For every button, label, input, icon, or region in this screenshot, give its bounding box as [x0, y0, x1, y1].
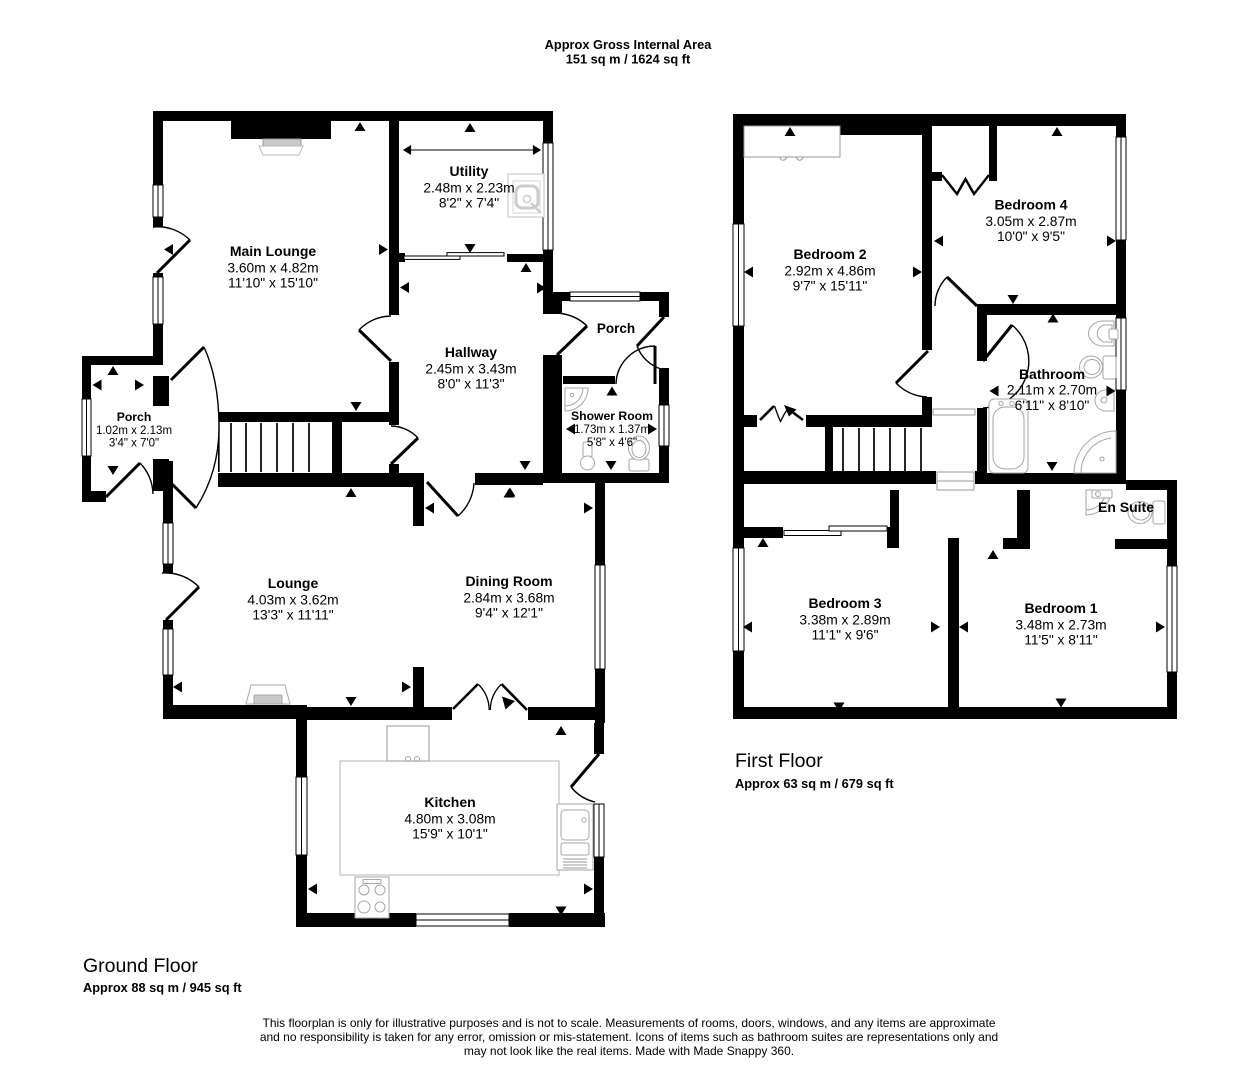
svg-text:Approx 63 sq m / 679 sq ft: Approx 63 sq m / 679 sq ft	[735, 776, 894, 791]
svg-text:Main Lounge: Main Lounge	[230, 243, 317, 259]
svg-text:Ground Floor: Ground Floor	[83, 955, 198, 977]
svg-text:1.02m x 2.13m: 1.02m x 2.13m	[96, 425, 172, 437]
svg-text:3.05m x 2.87m: 3.05m x 2.87m	[985, 214, 1076, 229]
svg-text:11'5" x 8'11": 11'5" x 8'11"	[1024, 633, 1098, 648]
svg-text:Dining Room: Dining Room	[465, 573, 552, 589]
svg-text:9'4" x 12'1": 9'4" x 12'1"	[475, 606, 543, 621]
svg-text:6'11" x 8'10": 6'11" x 8'10"	[1015, 398, 1090, 413]
svg-text:15'9" x 10'1": 15'9" x 10'1"	[412, 827, 488, 842]
svg-text:Bedroom 3: Bedroom 3	[808, 595, 881, 611]
svg-text:9'7" x 15'11": 9'7" x 15'11"	[793, 279, 868, 294]
svg-text:Approx 88 sq m / 945 sq ft: Approx 88 sq m / 945 sq ft	[83, 980, 242, 995]
svg-text:3.48m x 2.73m: 3.48m x 2.73m	[1015, 618, 1106, 633]
svg-text:Utility: Utility	[450, 163, 489, 179]
svg-text:2.92m x 4.86m: 2.92m x 4.86m	[784, 264, 875, 279]
svg-text:Porch: Porch	[597, 321, 635, 336]
svg-text:4.80m x 3.08m: 4.80m x 3.08m	[404, 812, 495, 827]
svg-text:4.03m x 3.62m: 4.03m x 3.62m	[247, 593, 338, 608]
svg-text:Bedroom 1: Bedroom 1	[1024, 600, 1097, 616]
svg-text:and no responsibility is taken: and no responsibility is taken for any e…	[260, 1030, 998, 1044]
svg-text:2.45m x 3.43m: 2.45m x 3.43m	[425, 362, 516, 377]
svg-text:1.73m x 1.37m: 1.73m x 1.37m	[574, 424, 650, 436]
svg-text:5'8" x 4'6": 5'8" x 4'6"	[587, 437, 637, 449]
svg-text:Porch: Porch	[117, 410, 152, 424]
svg-text:Bedroom 4: Bedroom 4	[994, 197, 1067, 213]
svg-text:First Floor: First Floor	[735, 750, 823, 772]
svg-text:3.38m x 2.89m: 3.38m x 2.89m	[799, 613, 890, 628]
svg-text:2.11m x 2.70m: 2.11m x 2.70m	[1007, 383, 1097, 398]
svg-text:Lounge: Lounge	[268, 575, 319, 591]
svg-text:3.60m x 4.82m: 3.60m x 4.82m	[227, 261, 318, 276]
svg-text:Kitchen: Kitchen	[424, 794, 475, 810]
svg-text:11'1" x 9'6": 11'1" x 9'6"	[812, 628, 879, 643]
svg-text:2.48m x 2.23m: 2.48m x 2.23m	[423, 181, 514, 196]
svg-text:11'10" x 15'10": 11'10" x 15'10"	[228, 276, 318, 291]
svg-text:En Suite: En Suite	[1098, 499, 1154, 515]
svg-text:10'0" x 9'5": 10'0" x 9'5"	[997, 229, 1065, 244]
svg-text:Hallway: Hallway	[445, 344, 497, 360]
svg-text:13'3" x 11'11": 13'3" x 11'11"	[252, 608, 333, 623]
svg-text:3'4" x 7'0": 3'4" x 7'0"	[109, 438, 159, 450]
svg-text:Approx Gross Internal Area: Approx Gross Internal Area	[545, 37, 713, 52]
svg-text:8'0" x 11'3": 8'0" x 11'3"	[438, 377, 505, 392]
svg-text:Bathroom: Bathroom	[1019, 366, 1085, 382]
svg-text:Bedroom 2: Bedroom 2	[793, 246, 866, 262]
svg-text:Shower Room: Shower Room	[571, 409, 653, 423]
svg-text:151 sq m / 1624 sq ft: 151 sq m / 1624 sq ft	[566, 52, 691, 67]
svg-text:may not look like the real ite: may not look like the real items. Made w…	[464, 1044, 794, 1058]
svg-text:8'2" x 7'4": 8'2" x 7'4"	[439, 196, 499, 211]
svg-text:This floorplan is only for ill: This floorplan is only for illustrative …	[262, 1016, 995, 1030]
svg-text:2.84m x 3.68m: 2.84m x 3.68m	[463, 591, 554, 606]
